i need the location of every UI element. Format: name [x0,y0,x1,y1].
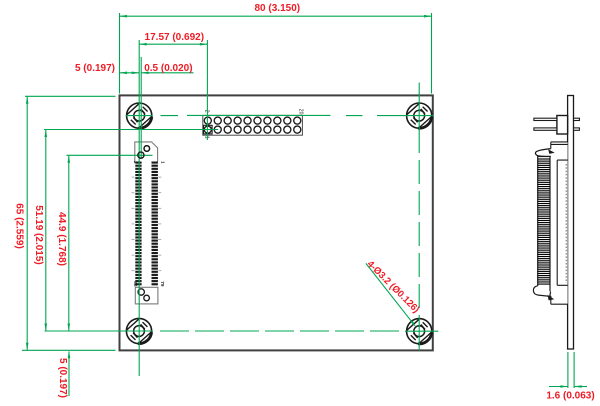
svg-text:65 (2.559): 65 (2.559) [13,203,24,249]
svg-text:80 (3.150): 80 (3.150) [255,3,301,14]
svg-text:1: 1 [204,136,210,139]
svg-text:20: 20 [297,109,303,115]
svg-text:5 (0.197): 5 (0.197) [57,358,68,398]
svg-text:79: 79 [160,281,165,287]
svg-text:80: 80 [133,281,138,287]
svg-text:44.9 (1.768): 44.9 (1.768) [56,212,67,266]
svg-text:5 (0.197): 5 (0.197) [75,63,115,74]
svg-text:17.57 (0.692): 17.57 (0.692) [145,32,205,43]
svg-text:2: 2 [204,110,210,113]
svg-text:0.5 (0.020): 0.5 (0.020) [144,63,192,74]
svg-text:51.19 (2.015): 51.19 (2.015) [33,205,44,265]
svg-text:1.6 (0.063): 1.6 (0.063) [546,390,594,401]
svg-text:1: 1 [160,161,165,164]
svg-text:2: 2 [133,161,138,164]
